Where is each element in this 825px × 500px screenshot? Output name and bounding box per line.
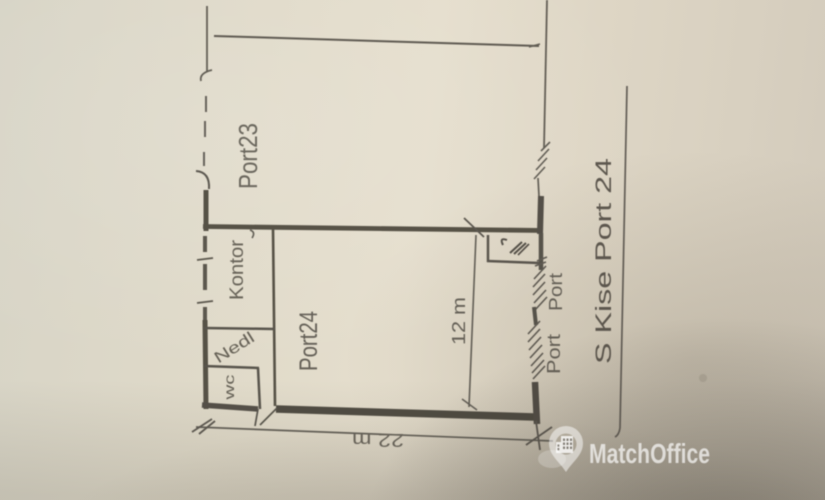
svg-text:Kontor: Kontor — [227, 239, 248, 300]
svg-text:S Kise Port 24: S Kise Port 24 — [591, 158, 616, 364]
svg-text:Port24: Port24 — [295, 311, 323, 371]
svg-text:Port: Port — [544, 334, 564, 374]
svg-text:12 m: 12 m — [449, 297, 469, 345]
svg-text:wc: wc — [221, 375, 237, 401]
svg-text:MatchOffice: MatchOffice — [589, 438, 710, 469]
svg-text:Port23: Port23 — [233, 123, 263, 189]
svg-text:Nedl: Nedl — [211, 329, 257, 367]
svg-text:22 m: 22 m — [352, 430, 404, 450]
svg-text:Port: Port — [546, 273, 566, 311]
